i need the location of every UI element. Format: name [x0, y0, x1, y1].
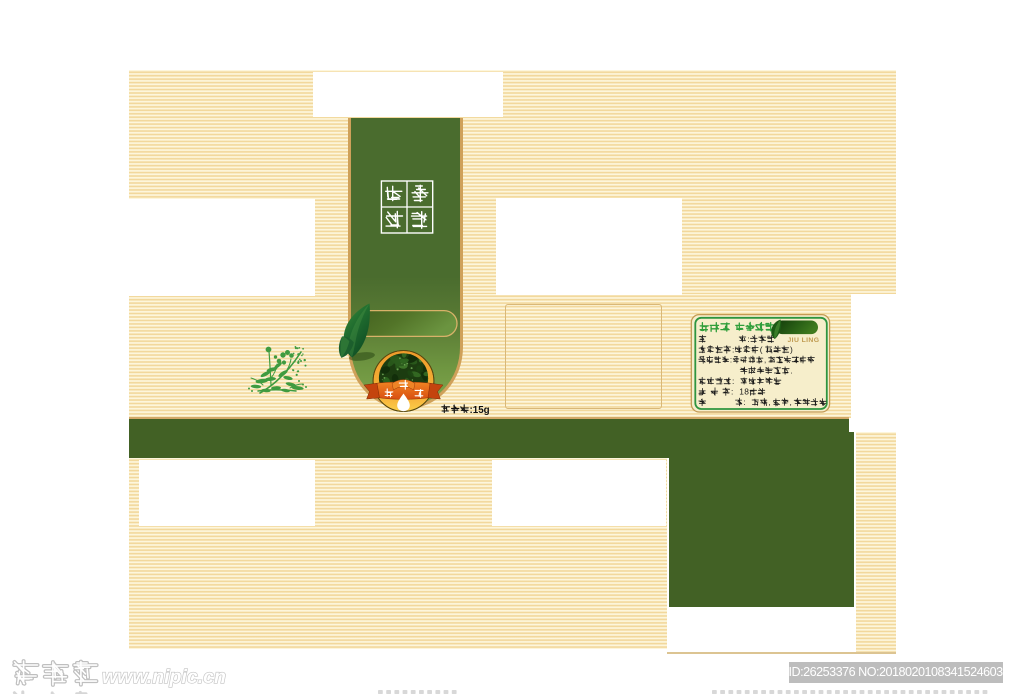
- svg-text:,: ,: [790, 397, 792, 407]
- svg-text:,: ,: [764, 355, 766, 364]
- svg-text::: :: [732, 344, 734, 354]
- svg-text::: :: [731, 387, 733, 397]
- svg-text::: :: [732, 376, 734, 386]
- svg-text::: :: [743, 397, 745, 407]
- svg-text:.: .: [790, 365, 792, 375]
- svg-text:(: (: [760, 344, 763, 354]
- svg-text:): ): [790, 344, 793, 354]
- svg-text::: :: [747, 334, 749, 344]
- svg-text:8: 8: [744, 387, 749, 397]
- svg-text::: :: [730, 355, 732, 364]
- svg-text:,: ,: [768, 397, 770, 407]
- svg-text:www.nipic.cn: www.nipic.cn: [102, 666, 226, 688]
- svg-text::15g: :15g: [470, 405, 490, 416]
- svg-text:JIU LING: JIU LING: [788, 337, 820, 344]
